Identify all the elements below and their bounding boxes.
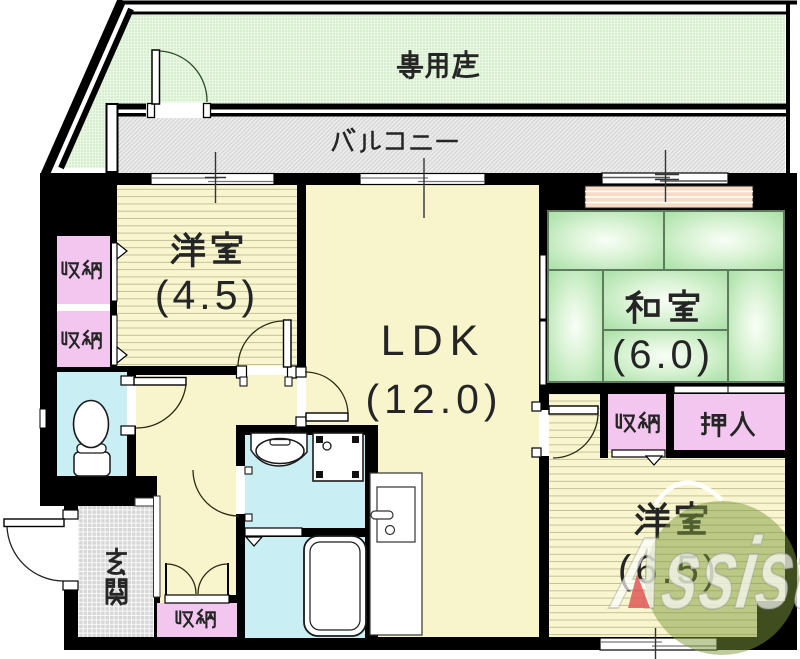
svg-text:(12.0): (12.0) — [365, 376, 502, 422]
svg-text:Assist: Assist — [605, 517, 800, 631]
svg-text:(6.0): (6.0) — [612, 333, 714, 377]
svg-text:(4.5): (4.5) — [155, 272, 259, 318]
svg-text:LDK: LDK — [381, 317, 486, 365]
